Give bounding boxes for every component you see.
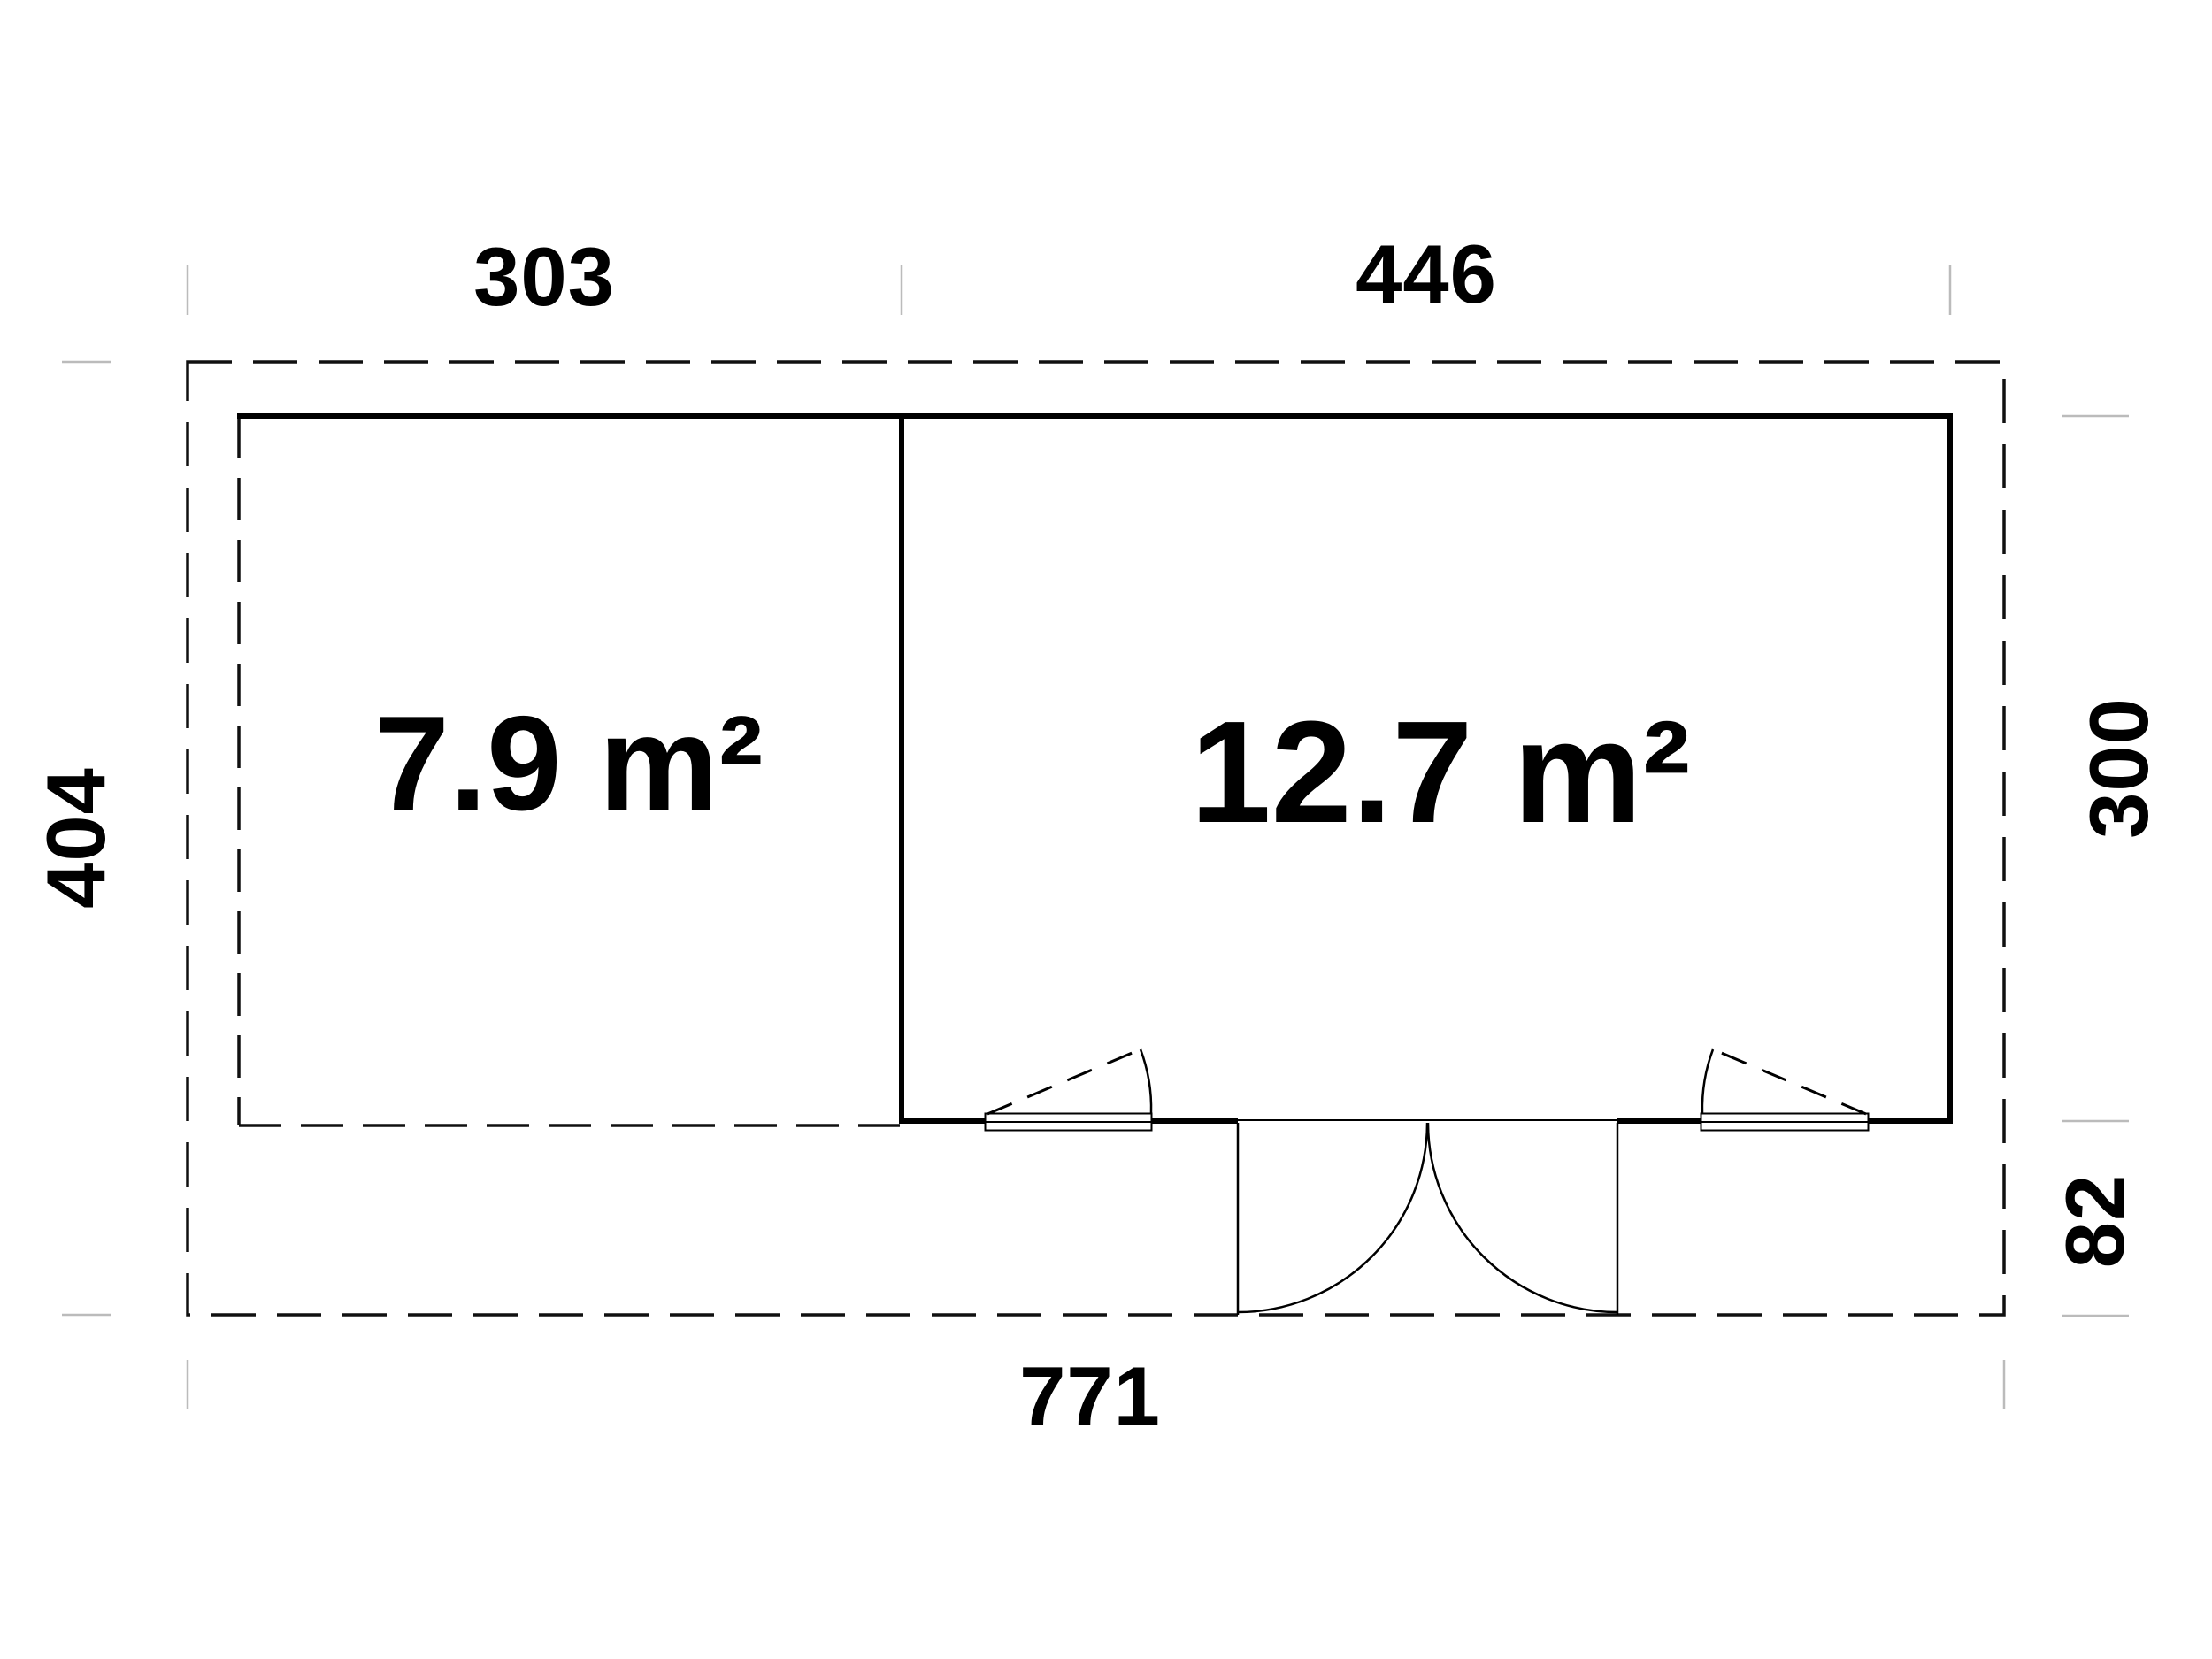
floorplan-canvas: 303 446 404 300 82 771 7.9 m² 12.7 m²: [0, 0, 2212, 1659]
dim-label-right-lower: 82: [2048, 1174, 2141, 1269]
area-label-right-room: 12.7 m²: [1190, 691, 1690, 853]
double-door-left-swing-arc: [1238, 1123, 1427, 1312]
dim-label-top-right: 446: [1356, 227, 1497, 320]
left-door-open-leaf-dashed: [987, 1049, 1141, 1114]
area-labels: 7.9 m² 12.7 m²: [374, 688, 1690, 853]
right-door-swing-arc: [1702, 1049, 1713, 1113]
double-door-right-swing-arc: [1428, 1123, 1617, 1312]
left-single-door: [986, 1049, 1152, 1131]
dimension-labels: 303 446 404 300 82 771: [29, 227, 2165, 1442]
dim-label-left: 404: [29, 767, 122, 909]
left-door-swing-arc: [1141, 1049, 1151, 1113]
area-label-left-room: 7.9 m²: [374, 688, 763, 839]
right-door-open-leaf-dashed: [1713, 1049, 1866, 1114]
dimension-ticks: [62, 265, 2129, 1409]
dim-label-top-left: 303: [473, 230, 615, 323]
double-door: [1238, 1120, 1617, 1315]
dim-label-right-upper: 300: [2072, 697, 2165, 839]
right-single-door: [1701, 1049, 1869, 1131]
floorplan-drawing: 303 446 404 300 82 771 7.9 m² 12.7 m²: [0, 0, 2212, 1659]
dim-label-bottom: 771: [1019, 1349, 1161, 1442]
